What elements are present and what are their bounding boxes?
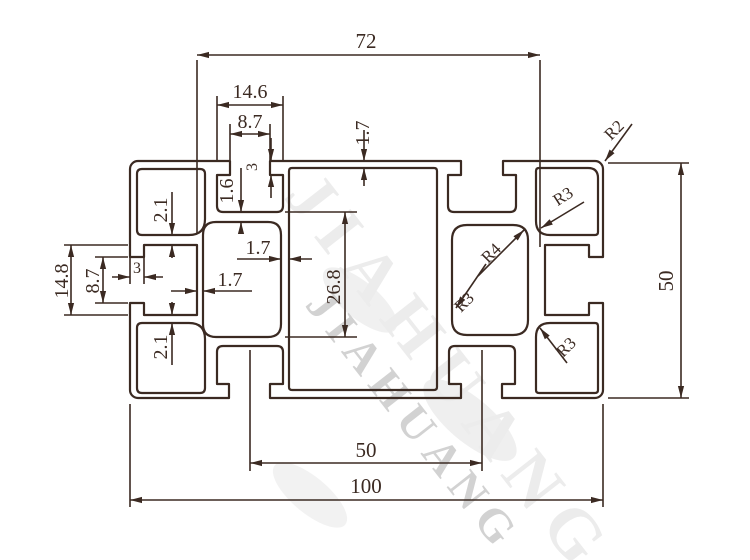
label-r3-bottom: R3: [552, 333, 579, 360]
label-2-1-bottom: 2.1: [150, 335, 172, 360]
label-2-1-top: 2.1: [150, 198, 172, 223]
label-1-7-top: 1.7: [352, 121, 374, 146]
drawing-canvas: JIAHUANG JIAHUANG: [0, 0, 750, 560]
label-26-8: 26.8: [323, 270, 345, 305]
label-1-7-mid-upper: 1.7: [246, 237, 271, 259]
watermark-blob: [263, 452, 357, 539]
label-14-6: 14.6: [233, 81, 268, 103]
label-r2: R2: [600, 116, 627, 143]
label-8-7-left: 8.7: [82, 269, 104, 294]
label-100: 100: [350, 474, 382, 498]
label-50-bottom: 50: [356, 438, 377, 462]
label-8-7-top: 8.7: [238, 111, 263, 133]
label-r3-top: R3: [550, 183, 577, 210]
label-r3-mid: R3: [450, 288, 477, 315]
label-14-8: 14.8: [51, 264, 73, 299]
label-3-top: 3: [244, 163, 261, 171]
label-72: 72: [356, 29, 377, 53]
label-1-7-mid-lower: 1.7: [218, 269, 243, 291]
profile-drawing: JIAHUANG JIAHUANG: [0, 0, 750, 560]
label-1-6: 1.6: [216, 179, 238, 204]
label-3-left: 3: [133, 260, 141, 277]
label-50-right: 50: [654, 271, 678, 292]
label-r4: R4: [477, 239, 505, 267]
